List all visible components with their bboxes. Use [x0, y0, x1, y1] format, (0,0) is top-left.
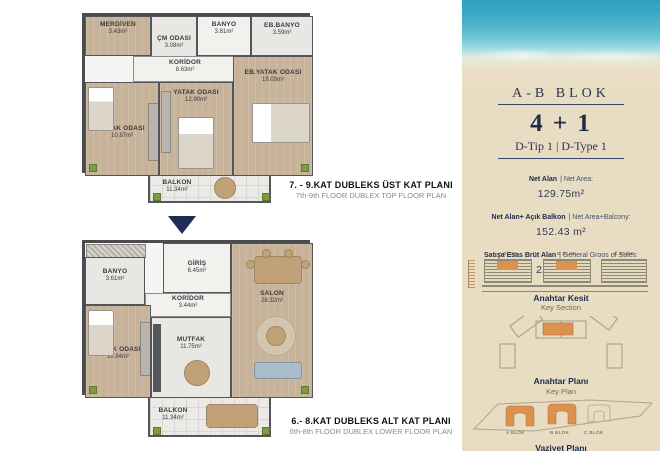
kitchen-table: [184, 360, 210, 386]
caption-bottom-plan: 6.- 8.KAT DUBLEKS ALT KAT PLANI 6th-8th …: [278, 416, 464, 436]
room-area: 3.43m²: [86, 29, 150, 37]
room-eb-yatak-odasi: EB.YATAK ODASI19.03m²: [233, 56, 313, 176]
block-label: C BLOK: [601, 252, 647, 257]
building-elevation: [543, 259, 591, 283]
room-label: KORİDOR: [134, 59, 236, 67]
room-eb-banyo: EB.BANYO3.59m²: [251, 16, 313, 56]
room-label: SALON: [232, 290, 312, 298]
room-area: 3.61m²: [86, 276, 144, 284]
room-yatak-odasi-12: YATAK ODASI12.90m²: [159, 82, 233, 176]
chair: [301, 260, 310, 269]
chair: [284, 249, 293, 258]
highlighted-floors: [556, 261, 577, 270]
down-arrow-icon: [168, 216, 196, 234]
sofa: [254, 362, 302, 379]
balcony-dining-table: [206, 404, 258, 428]
room-area: 3.59m²: [252, 30, 312, 38]
room-area: 11.34m²: [128, 415, 218, 423]
block-label: B BLOK: [543, 252, 591, 257]
unit-type: 4 + 1: [462, 110, 660, 138]
chair: [262, 249, 271, 258]
area-label-en: | Net Area+Balcony:: [569, 214, 631, 221]
balcony-table: [214, 177, 236, 199]
plant: [262, 427, 270, 435]
highlighted-floors: [497, 261, 518, 270]
room-banyo-bottom: BANYO3.61m²: [85, 257, 145, 305]
room-label: GİRİŞ: [164, 260, 230, 268]
room-label: MERDİVEN: [86, 21, 150, 29]
plant: [153, 427, 161, 435]
chair: [246, 260, 255, 269]
room-koridor-bottom: KORİDOR3.44m²: [145, 293, 231, 317]
building-elevation: [601, 259, 647, 283]
room-area: 11.75m²: [152, 344, 230, 352]
floor-plan-bottom: BALKON 11.34m² BANYO3.61m² GİRİŞ6.45m² K…: [82, 240, 310, 440]
bed: [252, 103, 310, 143]
building-elevation: [484, 259, 532, 283]
room-label: ÇM ODASI: [152, 35, 196, 43]
room-label: KORİDOR: [146, 295, 230, 303]
room-label: BALKON: [132, 179, 222, 187]
caption-top-plan: 7. - 9.KAT DUBLEKS ÜST KAT PLANI 7th-9th…: [278, 180, 464, 200]
site-plan-title: Vaziyet Planı: [462, 443, 660, 451]
section-block-c: C BLOK: [601, 252, 647, 283]
key-section-title-tr: Anahtar Kesit: [462, 293, 660, 303]
room-label: MUTFAK: [152, 336, 230, 344]
caption-title: 7. - 9.KAT DUBLEKS ÜST KAT PLANI: [278, 180, 464, 190]
wardrobe: [140, 322, 151, 376]
room-label: BANYO: [86, 268, 144, 276]
room-area: 8.63m²: [134, 67, 236, 75]
area-label-tr: Net Alan: [529, 176, 557, 183]
plan-body-bottom: BANYO3.61m² GİRİŞ6.45m² KORİDOR3.44m² SA…: [82, 240, 310, 395]
plant: [89, 386, 97, 394]
area-label-en: | Net Area:: [560, 176, 593, 183]
section-block-a: A BLOK: [484, 252, 532, 283]
key-plan-drawing: [496, 316, 626, 372]
room-area: 19.03m²: [234, 77, 312, 85]
armchair: [266, 326, 286, 346]
room-label: EB.YATAK ODASI: [234, 69, 312, 77]
caption-subtitle: 7th-9th FLOOR DUBLEX TOP FLOOR PLAN: [278, 191, 464, 200]
ground-line: [482, 285, 648, 292]
kitchen-counter: [153, 324, 161, 392]
plan-body-top: MERDİVEN3.43m² ÇM ODASI3.08m² BANYO3.81m…: [82, 13, 310, 173]
site-plan-labels: A BLOK B BLOK C BLOK: [462, 431, 660, 439]
plant: [89, 164, 97, 172]
room-yatak-odasi-10: YATAK ODASI10.87m²: [85, 82, 159, 176]
dining-table: [254, 256, 302, 284]
room-area: 3.44m²: [146, 303, 230, 311]
divider: [498, 158, 624, 159]
bed: [88, 310, 114, 356]
room-merdiven: MERDİVEN3.43m²: [85, 16, 151, 56]
key-plan-title-en: Key Plan: [462, 387, 660, 396]
room-area: 11.34m²: [132, 187, 222, 195]
site-label-a: A BLOK: [506, 431, 525, 436]
room-koridor-top: KORİDOR8.63m²: [133, 56, 237, 82]
area-label-tr: Net Alan+ Açık Balkon: [492, 214, 566, 221]
divider: [498, 104, 624, 105]
key-section-title-en: Key Section: [462, 303, 660, 312]
room-area: 28.32m²: [232, 298, 312, 306]
room-salon: SALON28.32m²: [231, 243, 313, 398]
room-area: 3.08m²: [152, 43, 196, 51]
area-value: 129.75m²: [462, 188, 660, 200]
room-area: 6.45m²: [164, 268, 230, 276]
room-mutfak: MUTFAK11.75m²: [151, 317, 231, 398]
caption-subtitle: 6th-8th FLOOR DUBLEX LOWER FLOOR PLAN: [278, 427, 464, 436]
site-label-c: C BLOK: [584, 431, 603, 436]
plant: [301, 386, 309, 394]
caption-title: 6.- 8.KAT DUBLEKS ALT KAT PLANI: [278, 416, 464, 426]
bed: [178, 117, 214, 169]
room-yatak-odasi-bottom: YATAK ODASI10.84m²: [85, 305, 151, 398]
room-banyo-top: BANYO3.81m²: [197, 16, 251, 56]
room-area: 3.81m²: [198, 29, 250, 37]
section-block-b: B BLOK: [543, 252, 591, 283]
info-sidebar: A-B BLOK 4 + 1 D-Tip 1 | D-Type 1 Net Al…: [462, 0, 660, 451]
area-row-net-balcony: Net Alan+ Açık Balkon| Net Area+Balcony:…: [462, 206, 660, 238]
key-plan-title-tr: Anahtar Planı: [462, 376, 660, 386]
floor-plan-top: BALKON 11.34m² MERDİVEN3.43m² ÇM ODASI3.…: [82, 13, 310, 205]
plant: [262, 193, 270, 201]
wardrobe: [148, 103, 159, 161]
site-plan-drawing: [470, 398, 656, 434]
beach-photo: [462, 0, 660, 95]
wave-foam: [462, 48, 660, 62]
room-label: EB.BANYO: [252, 22, 312, 30]
room-label: BALKON: [128, 407, 218, 415]
area-value: 152.43 m²: [462, 226, 660, 238]
block-title: A-B BLOK: [462, 86, 660, 102]
room-balkon-bottom: BALKON 11.34m²: [148, 393, 271, 437]
block-label: A BLOK: [484, 252, 532, 257]
floor-scale: [468, 260, 475, 288]
room-giris: GİRİŞ6.45m²: [163, 243, 231, 293]
shaft-hatch: [86, 244, 146, 258]
area-row-net: Net Alan| Net Area: 129.75m²: [462, 168, 660, 200]
wardrobe: [161, 91, 171, 153]
room-label: BANYO: [198, 21, 250, 29]
type-label: D-Tip 1 | D-Type 1: [462, 139, 660, 154]
plant: [153, 193, 161, 201]
brochure-page: BALKON 11.34m² MERDİVEN3.43m² ÇM ODASI3.…: [0, 0, 660, 451]
site-label-b: B BLOK: [550, 431, 569, 436]
plant: [301, 164, 309, 172]
bed: [88, 87, 114, 131]
